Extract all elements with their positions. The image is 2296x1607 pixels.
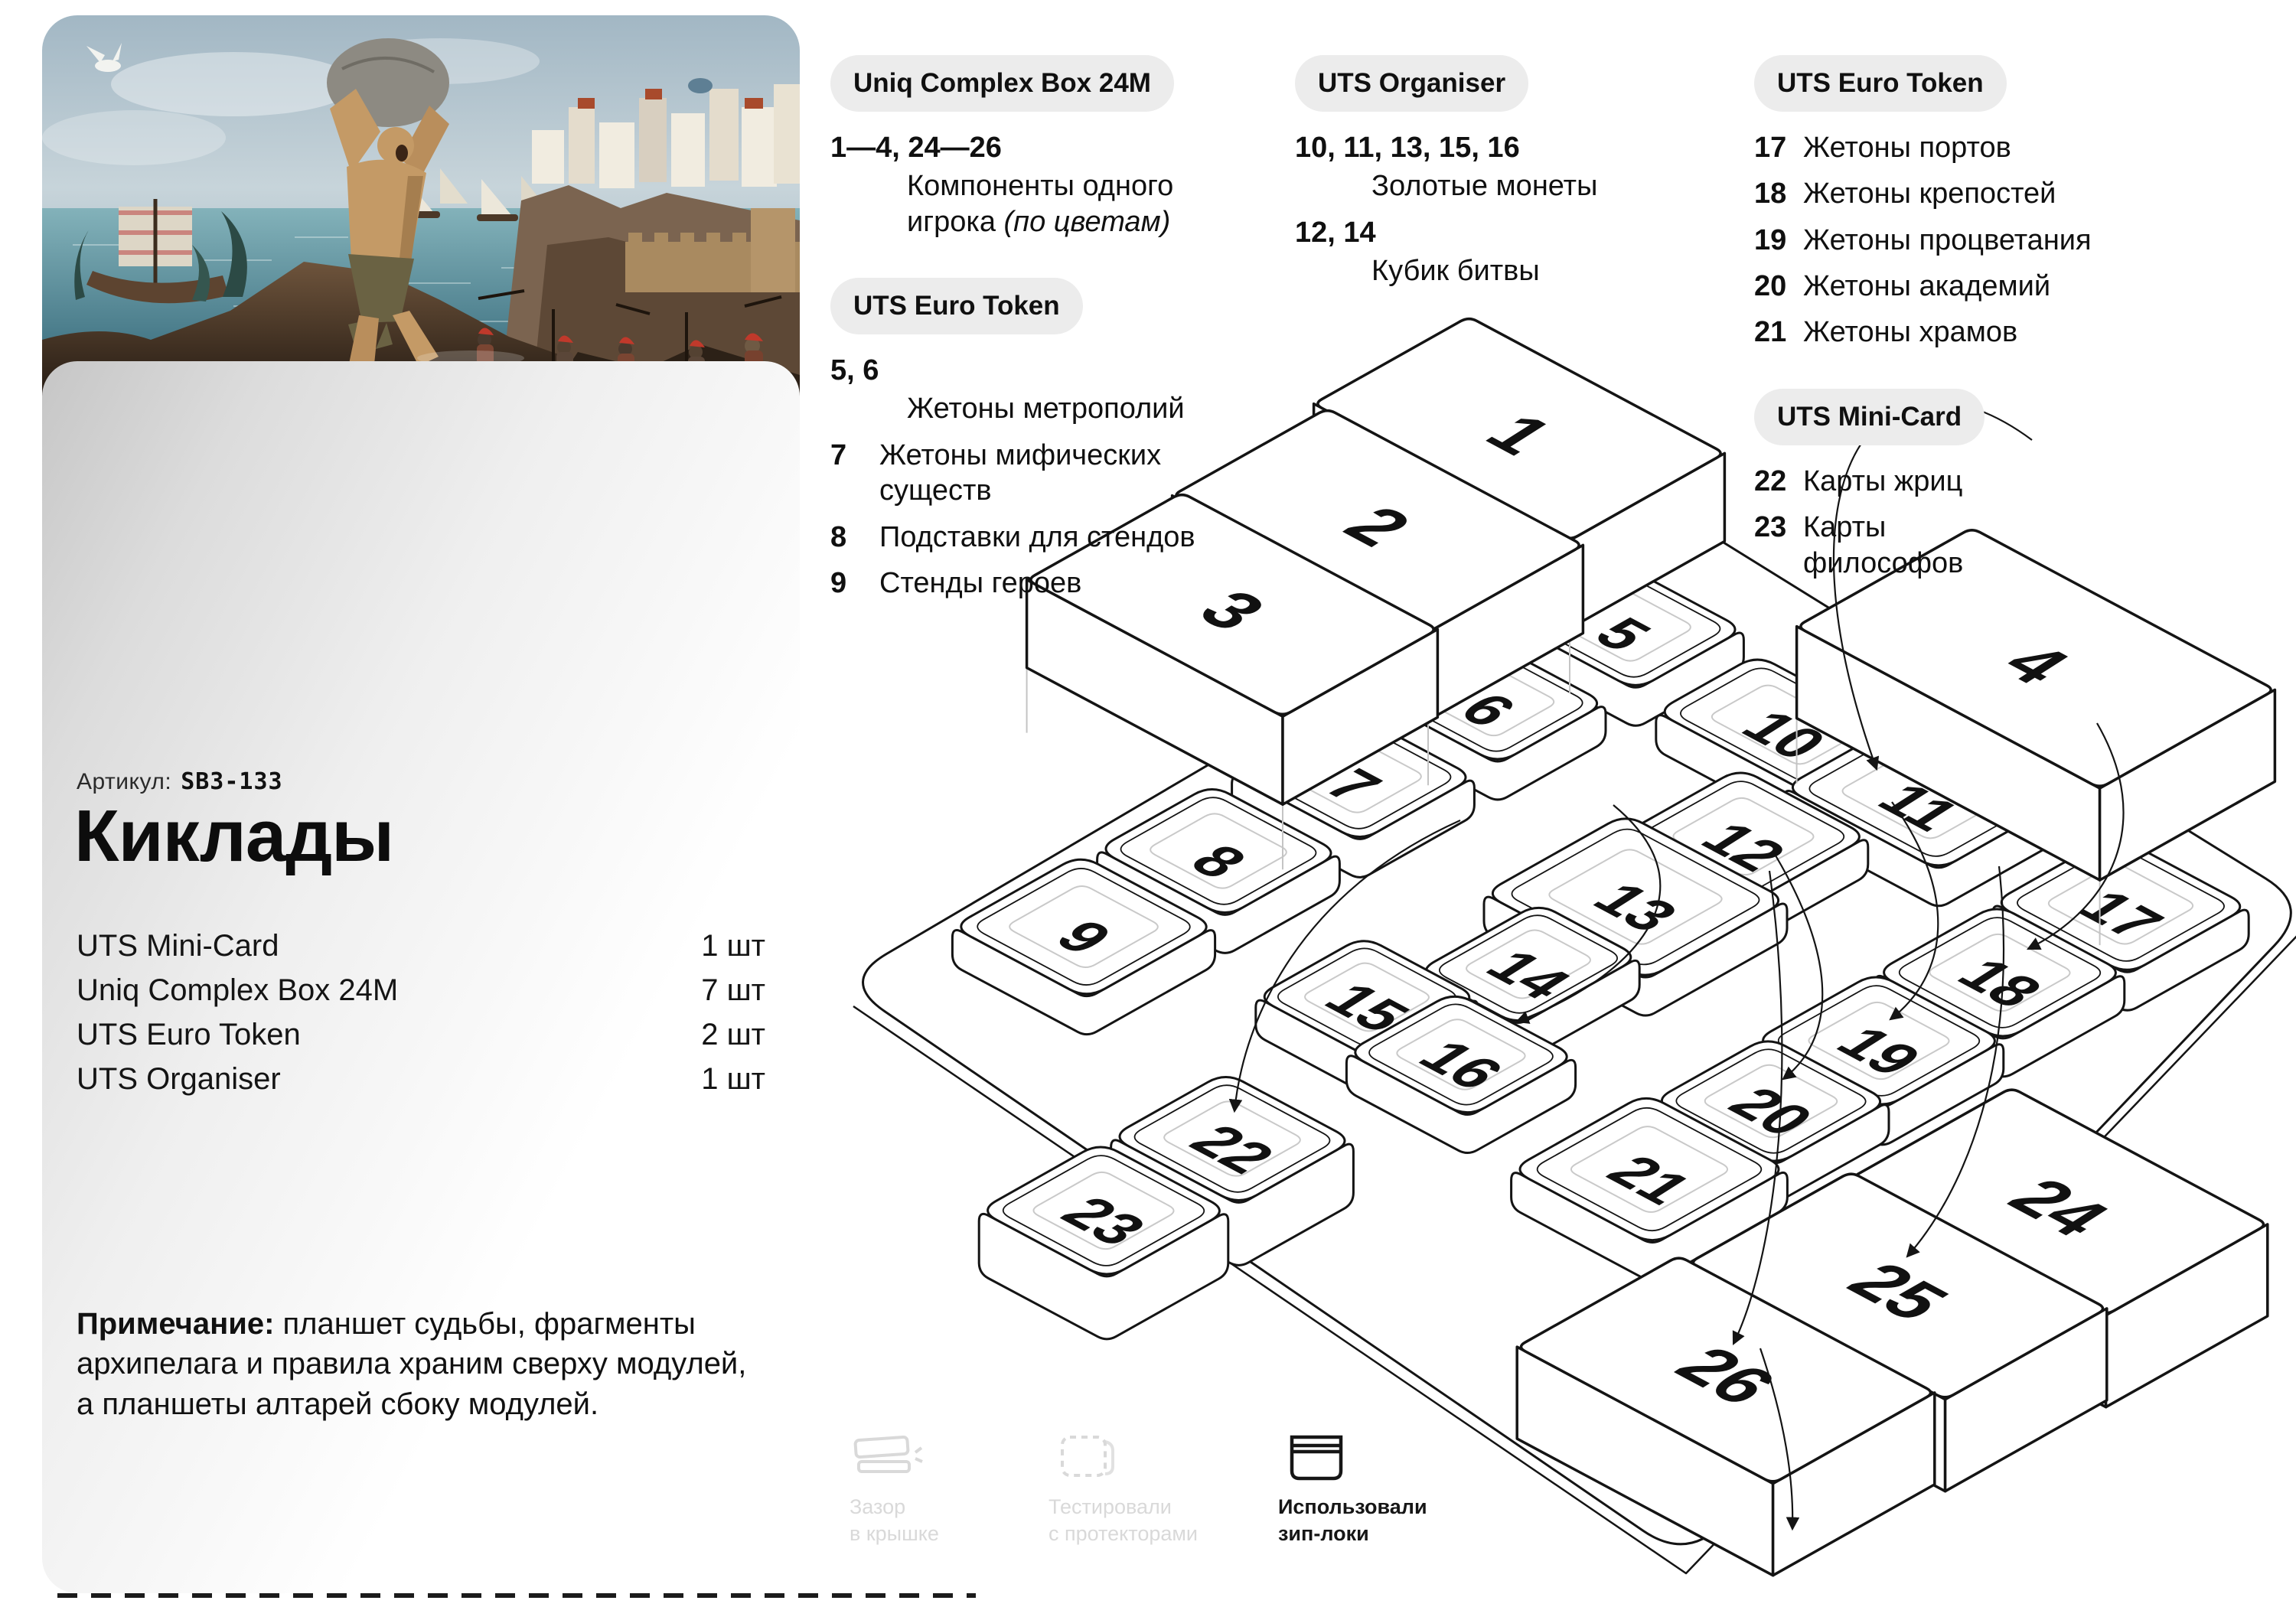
component-name: Uniq Complex Box 24M [77,973,398,1008]
component-qty: 1 шт [701,929,765,963]
pill-label: UTS Mini-Card [1777,402,1962,432]
legend-column-2: UTS Organiser 10, 11, 13, 15, 16 Золотые… [1295,55,1724,299]
item-number: 9 [830,566,879,601]
legend-column-3: UTS Euro Token 17 Жетоны портов 18 Жетон… [1754,55,2137,592]
component-qty: 7 шт [701,973,765,1008]
component-list: UTS Mini-Card 1 шт Uniq Complex Box 24M … [77,929,765,1107]
sign-ziplock-used: Использовали зип-локи [1278,1433,1469,1547]
article-row: Артикул:SB3-133 [77,768,283,795]
item-number: 22 [1754,464,1803,499]
pill-label: Uniq Complex Box 24M [853,68,1151,98]
item-numbers: 5, 6 [830,353,1270,388]
item-desc: Кубик битвы [1295,253,1724,288]
card-sleeve-icon [1049,1433,1125,1482]
item-desc: Жетоны крепостей [1803,176,2137,211]
article-value: SB3-133 [181,768,282,795]
legend-item: 18 Жетоны крепостей [1754,176,2137,211]
item-numbers: 10, 11, 13, 15, 16 [1295,130,1724,165]
component-name: UTS Mini-Card [77,929,279,963]
legend-item: 23 Карты философов [1754,510,2137,581]
legend-pill-uts-organiser: UTS Organiser [1295,55,1528,112]
legend-item: 19 Жетоны процветания [1754,223,2137,258]
item-desc: Золотые монеты [1295,168,1724,204]
item-desc: Компоненты одного игрока (по цветам) [830,168,1236,240]
item-desc: Подставки для стендов [879,520,1270,555]
lid-gap-icon [850,1433,926,1482]
cover-art [42,15,800,398]
legend-item: 8 Подставки для стендов [830,520,1270,555]
product-card: Артикул:SB3-133 Киклады UTS Mini-Card 1 … [42,15,800,1593]
legend-item: 7 Жетоны мифических существ [830,438,1270,509]
sign-label: Зазор в крышке [850,1494,1041,1547]
legend-item: 22 Карты жриц [1754,464,2137,499]
item-number: 18 [1754,176,1803,211]
legend-item: 1—4, 24—26 Компоненты одного игрока (по … [830,130,1270,240]
component-row: UTS Mini-Card 1 шт [77,929,765,963]
legend-pill-uts-euro-token: UTS Euro Token [830,278,1083,334]
legend-item: 5, 6 Жетоны метрополий [830,353,1270,427]
legend-item: 12, 14 Кубик битвы [1295,215,1724,289]
sign-lid-gap: Зазор в крышке [850,1433,1041,1547]
item-desc: Жетоны портов [1803,130,2137,165]
legend-item: 17 Жетоны портов [1754,130,2137,165]
cover-art-image [42,15,800,398]
legend-pill-uts-euro-token-2: UTS Euro Token [1754,55,2007,112]
component-name: UTS Euro Token [77,1018,301,1052]
card-info-panel: Артикул:SB3-133 Киклады UTS Mini-Card 1 … [42,361,800,1593]
pill-label: UTS Euro Token [853,291,1060,321]
item-desc: Жетоны мифических существ [879,438,1201,509]
legend-item: 20 Жетоны академий [1754,269,2137,304]
pill-label: UTS Euro Token [1777,68,1984,98]
note-label: Примечание: [77,1307,274,1341]
item-desc: Жетоны храмов [1803,315,2137,350]
item-number: 19 [1754,223,1803,258]
component-qty: 2 шт [701,1018,765,1052]
component-row: UTS Organiser 1 шт [77,1062,765,1097]
legend-pill-uts-mini-card: UTS Mini-Card [1754,389,1985,445]
ziplock-bag-icon [1278,1433,1355,1482]
pill-label: UTS Organiser [1318,68,1505,98]
component-row: UTS Euro Token 2 шт [77,1018,765,1052]
item-number: 17 [1754,130,1803,165]
legend-item: 21 Жетоны храмов [1754,315,2137,350]
item-desc: Карты философов [1803,510,1979,581]
item-desc: Жетоны академий [1803,269,2137,304]
item-number: 8 [830,520,879,555]
item-numbers: 12, 14 [1295,215,1724,250]
item-number: 21 [1754,315,1803,350]
component-qty: 1 шт [701,1062,765,1097]
component-name: UTS Organiser [77,1062,281,1097]
sign-label: Тестировали с протекторами [1049,1494,1240,1547]
item-number: 23 [1754,510,1803,581]
product-sheet: Артикул:SB3-133 Киклады UTS Mini-Card 1 … [0,0,2296,1607]
item-desc: Жетоны метрополий [830,391,1270,426]
item-number: 20 [1754,269,1803,304]
sign-label: Использовали зип-локи [1278,1494,1469,1547]
article-label: Артикул: [77,769,171,794]
sign-tested-with-sleeves: Тестировали с протекторами [1049,1433,1240,1547]
item-number: 7 [830,438,879,509]
legend-item: 10, 11, 13, 15, 16 Золотые монеты [1295,130,1724,204]
item-desc: Стенды героев [879,566,1270,601]
legend-item: 9 Стенды героев [830,566,1270,601]
page-title: Киклады [74,794,393,878]
component-row: Uniq Complex Box 24M 7 шт [77,973,765,1008]
item-desc: Жетоны процветания [1803,223,2137,258]
item-desc: Карты жриц [1803,464,2137,499]
note: Примечание: планшет судьбы, фрагменты ар… [77,1304,750,1424]
legend-pill-uniq-complex-box: Uniq Complex Box 24M [830,55,1174,112]
legend-column-1: Uniq Complex Box 24M 1—4, 24—26 Компонен… [830,55,1270,611]
item-numbers: 1—4, 24—26 [830,130,1270,165]
